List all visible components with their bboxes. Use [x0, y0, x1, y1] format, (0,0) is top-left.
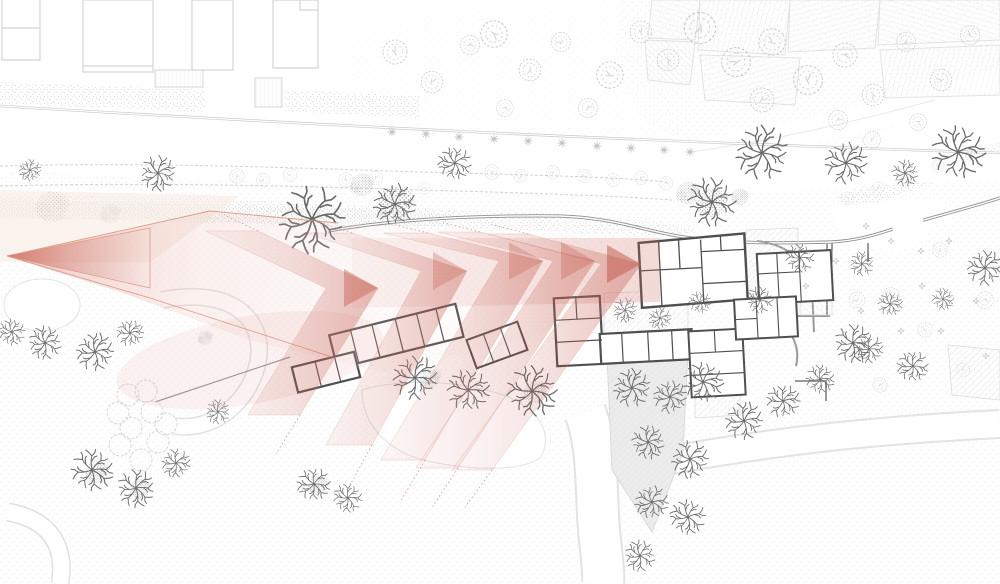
shrub-star-icon — [455, 133, 464, 142]
shrub-star-icon — [422, 130, 431, 139]
site-plan-stage — [0, 0, 1000, 584]
building-southeast-annex — [734, 296, 798, 339]
site-plan-canvas — [0, 0, 1000, 584]
shrub-star-icon — [388, 128, 397, 137]
shrub-star-icon — [490, 135, 499, 144]
road-gap — [893, 212, 923, 234]
